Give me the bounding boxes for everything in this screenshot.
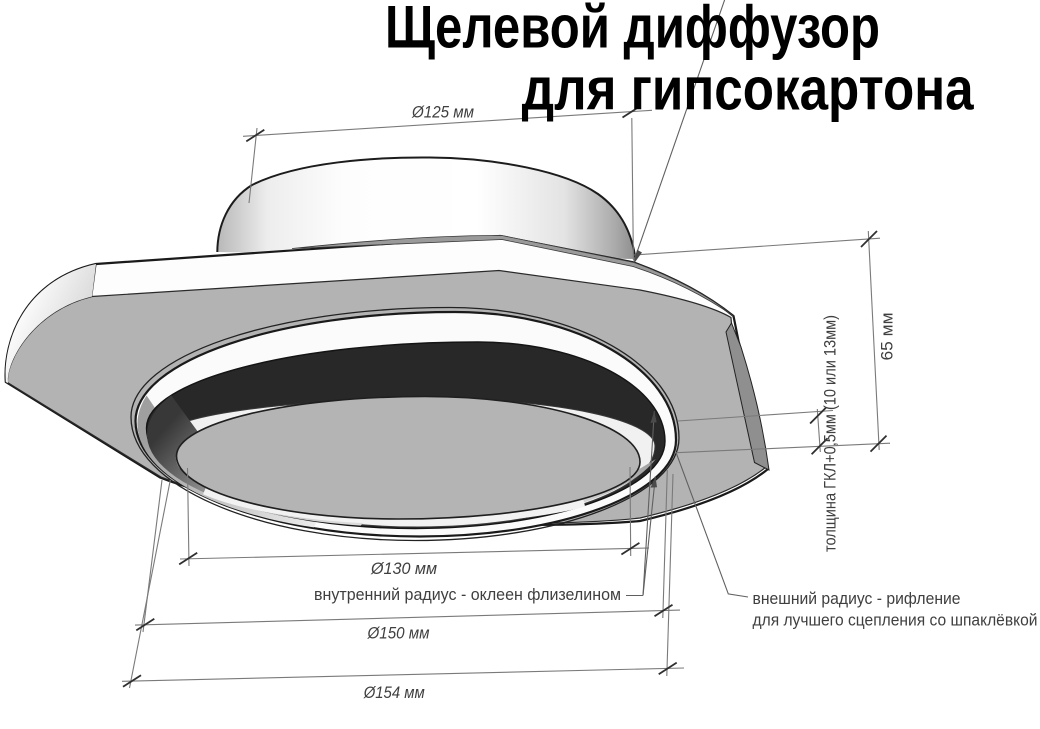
svg-text:Ø130 мм: Ø130 мм [370, 560, 437, 578]
svg-text:толщина ГКЛ+0,5мм (10 или 13мм: толщина ГКЛ+0,5мм (10 или 13мм) [821, 315, 839, 552]
svg-text:внешний радиус - рифление: внешний радиус - рифление [753, 590, 961, 608]
svg-text:Ø125 мм: Ø125 мм [411, 104, 474, 122]
svg-text:для лучшего сцепления со шпакл: для лучшего сцепления со шпаклёвкой [753, 612, 1038, 630]
svg-text:внутренний радиус - оклеен фли: внутренний радиус - оклеен флизелином [314, 586, 621, 604]
svg-text:для гипсокартона: для гипсокартона [522, 56, 975, 123]
svg-text:Щелевой диффузор: Щелевой диффузор [385, 0, 880, 61]
svg-text:Ø150 мм: Ø150 мм [367, 625, 430, 643]
svg-text:Ø154 мм: Ø154 мм [363, 684, 425, 702]
svg-text:65 мм: 65 мм [878, 313, 896, 361]
